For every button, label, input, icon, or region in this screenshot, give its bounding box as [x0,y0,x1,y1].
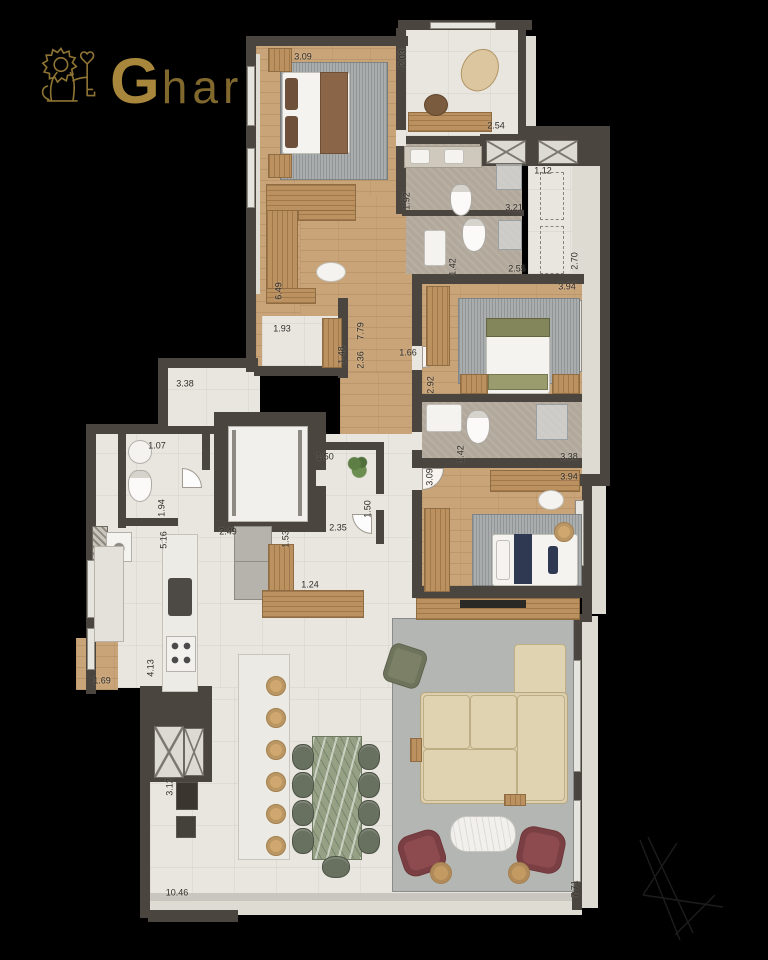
wardrobe [424,508,450,592]
bed-throw [320,72,348,154]
coffee-table [450,816,516,852]
wall [414,458,582,468]
vanity [426,404,462,432]
sofa-side-table [504,794,526,806]
bar-stool [266,804,286,824]
dining-chair [358,772,380,798]
cooktop [166,636,196,672]
shower [498,220,522,250]
wall [414,274,584,284]
sink [444,149,464,164]
wall [158,358,258,368]
nightstand [268,154,292,178]
door-gap [412,468,422,490]
brand-letter-g: G [110,54,160,108]
desk [490,470,580,492]
wardrobe [266,288,316,304]
nightstand [460,374,488,394]
door-gap [396,130,406,146]
desk-chair [538,490,564,510]
tv [460,600,526,608]
elevator-rail [298,430,302,516]
floor-plan-page: { "logo": { "brand_g": "G", "brand_rest"… [0,0,768,960]
side-table [430,862,452,884]
sofa-cushion [423,749,517,801]
lion-key-icon [34,40,108,108]
dining-chair [322,856,350,878]
sofa-cushion [517,695,565,801]
utility-panel [176,816,196,838]
bedroom3-balcony [592,484,606,614]
wall [414,394,582,402]
wall [600,132,610,482]
kitchen-side-counter [94,546,124,642]
wall [306,442,384,450]
toilet [466,410,490,444]
wall [246,36,408,46]
powder-sink [128,440,152,464]
terrace-edge-right [582,616,598,908]
wardrobe [266,184,356,212]
wall [118,426,126,528]
utility-panel [176,782,198,810]
wall [396,28,406,214]
bar-stool [266,740,286,760]
side-table [508,862,530,884]
nightstand [268,48,292,72]
cushion [548,546,558,574]
wall [148,910,238,922]
elevator-rail [232,430,236,516]
wall [202,426,210,470]
bar-stool [266,676,286,696]
window [247,148,255,208]
toilet [450,184,472,216]
sofa-cushion [423,695,470,749]
wall [118,426,214,434]
sideboard [262,590,364,618]
wall [376,442,384,494]
toilet [128,470,152,502]
shaft-box [538,140,578,164]
dining-chair [292,800,314,826]
dining-chair [358,828,380,854]
tall-cabinet [268,544,294,594]
wall [158,358,168,432]
toilet [462,218,486,252]
dining-chair [292,828,314,854]
bath-tub [424,230,446,266]
pillow [285,78,298,110]
refrigerator [234,526,272,600]
dining-chair [358,744,380,770]
wall [518,20,526,136]
pillow [285,116,298,148]
sofa-cushion [470,695,517,749]
closet-shelf [298,210,356,221]
linen-cabinet [540,172,564,220]
elevator-car [228,426,308,522]
bar-stool [266,836,286,856]
dining-table [312,736,362,860]
bar-stool [266,708,286,728]
headboard [486,318,550,337]
pillow [496,540,510,580]
shaft-box [154,726,184,778]
sliding-door [573,800,581,882]
wall [376,510,384,544]
nightstand [552,374,580,394]
desk-chair [424,94,448,116]
wall [118,518,178,526]
potted-plant [346,454,370,478]
shower [536,404,568,440]
shaft-box [486,140,526,164]
brand-logo: G har [34,40,243,108]
door-gap [412,432,422,450]
sectional-sofa [420,692,568,804]
window [430,22,496,29]
pouf [554,522,574,542]
bed-foot-blanket [488,374,548,390]
dressing-cabinet [322,318,342,368]
elevator-door-gap [316,470,326,486]
kitchen-sink [168,578,192,616]
bed-runner [514,534,532,584]
sink [410,149,430,164]
side-deck-floor [76,638,118,690]
brand-letters-har: har [162,66,243,108]
study-outer-ledge [526,36,536,130]
terrace-edge-bottom-outer [150,893,582,901]
sofa-side-table [410,738,422,762]
study-desk [408,112,492,132]
sketch-lines [615,825,755,955]
closet-bench [316,262,346,282]
shaft-box [184,728,204,776]
dining-chair [358,800,380,826]
dining-chair [292,744,314,770]
wardrobe [426,286,450,366]
bar-stool [266,772,286,792]
dining-chair [292,772,314,798]
ottoman [514,644,566,696]
sliding-door [573,660,581,772]
window [247,66,255,126]
linen-cabinet [540,226,564,274]
door-gap [412,346,422,370]
